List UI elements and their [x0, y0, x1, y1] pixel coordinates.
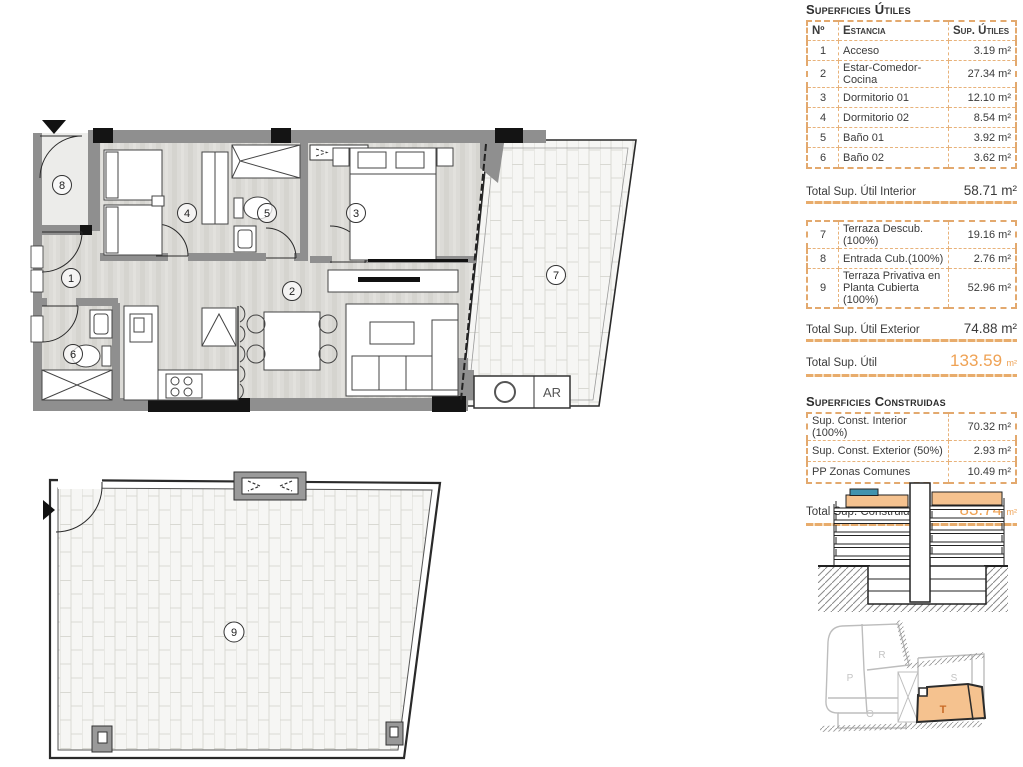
svg-text:3: 3 — [353, 208, 359, 220]
table-row: 3Dormitorio 0112.10 m² — [807, 88, 1016, 108]
table-row: 4Dormitorio 028.54 m² — [807, 108, 1016, 128]
unit-t-label: T — [940, 704, 947, 716]
boundary-hatch — [896, 620, 911, 664]
entrance-arrow-icon — [42, 120, 66, 134]
divider — [806, 339, 1017, 342]
roof-window-icon — [234, 472, 306, 500]
total-exterior: Total Sup. Útil Exterior 74.88 m² — [806, 321, 1017, 336]
building-section-diagram — [818, 478, 1008, 613]
exterior-table: 7Terraza Descub.(100%)19.16 m² 8Entrada … — [806, 220, 1017, 309]
highlight-floor-left — [846, 495, 908, 507]
sofa — [346, 304, 458, 396]
useful-title: Superficies Útiles — [806, 2, 1017, 17]
total-interior: Total Sup. Útil Interior 58.71 m² — [806, 183, 1017, 198]
built-table: Sup. Const. Interior (100%)70.32 m² Sup.… — [806, 412, 1017, 484]
block-o: O — [866, 709, 874, 720]
svg-text:9: 9 — [231, 627, 237, 639]
svg-text:2: 2 — [289, 286, 295, 298]
main-floorplan: AR 1 2 3 4 5 6 7 8 — [28, 108, 648, 438]
highlight-floor-right — [932, 492, 1002, 505]
table-row: 6Baño 023.62 m² — [807, 148, 1016, 169]
core-box — [898, 672, 918, 722]
svg-text:4: 4 — [184, 208, 190, 220]
divider — [806, 201, 1017, 204]
table-row: 5Baño 013.92 m² — [807, 128, 1016, 148]
block-s: S — [951, 673, 958, 684]
divider — [806, 374, 1017, 377]
plan-sheet: AR 1 2 3 4 5 6 7 8 — [0, 0, 1023, 767]
table-row: 2Estar-Comedor-Cocina27.34 m² — [807, 61, 1016, 88]
svg-text:7: 7 — [553, 270, 559, 282]
double-bed — [333, 148, 453, 260]
total-useful-value: 133.59 — [950, 351, 1002, 370]
total-useful: Total Sup. Útil 133.59 m² — [806, 351, 1017, 371]
right-tower — [930, 492, 1004, 566]
surface-panel: Superficies Útiles Nº Estancia Sup. Útil… — [806, 2, 1017, 526]
roof-blue-box — [850, 489, 878, 496]
table-header-row: Nº Estancia Sup. Útiles — [807, 21, 1016, 41]
built-title: Superficies Construidas — [806, 394, 1017, 409]
left-tower — [834, 489, 910, 566]
block-p: P — [847, 673, 854, 684]
svg-text:6: 6 — [70, 349, 76, 361]
ar-unit: AR — [474, 376, 570, 408]
core-shaft — [910, 483, 930, 602]
table-row: Sup. Const. Interior (100%)70.32 m² — [807, 413, 1016, 441]
table-row: 9Terraza Privativa en Planta Cubierta (1… — [807, 269, 1016, 309]
svg-text:1: 1 — [68, 273, 74, 285]
block-r: R — [878, 650, 885, 661]
room-label-9: 9 — [224, 622, 244, 642]
table-row: 7Terraza Descub.(100%)19.16 m² — [807, 221, 1016, 249]
roof-plan: 9 — [38, 468, 468, 767]
svg-text:8: 8 — [59, 180, 65, 192]
svg-text:5: 5 — [264, 208, 270, 220]
table-row: Sup. Const. Exterior (50%)2.93 m² — [807, 441, 1016, 462]
roof-floor — [58, 488, 432, 750]
table-row: 8Entrada Cub.(100%)2.76 m² — [807, 249, 1016, 269]
wardrobe — [202, 152, 228, 224]
ar-label: AR — [543, 385, 561, 400]
unit-t — [917, 684, 985, 722]
useful-table: Nº Estancia Sup. Útiles 1Acceso3.19 m² 2… — [806, 20, 1017, 169]
table-row: 1Acceso3.19 m² — [807, 41, 1016, 61]
site-key-plan: R P S O T — [812, 618, 1012, 766]
